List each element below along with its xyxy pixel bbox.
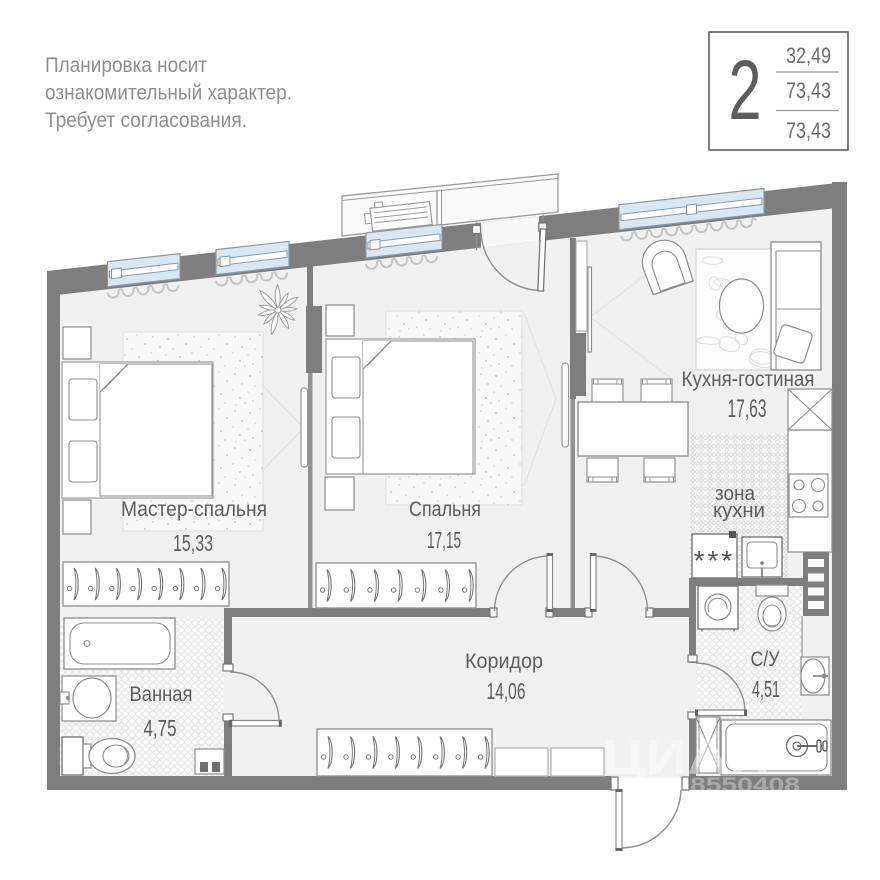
svg-text:2: 2 (729, 43, 762, 137)
svg-text:73,43: 73,43 (786, 118, 831, 143)
svg-text:4,75: 4,75 (144, 715, 177, 741)
svg-text:17,63: 17,63 (728, 395, 767, 423)
svg-text:С/У: С/У (751, 648, 781, 671)
svg-text:Коридор: Коридор (465, 650, 543, 673)
svg-text:***: *** (694, 545, 736, 576)
svg-text:Ванная: Ванная (130, 683, 193, 706)
svg-text:8550408: 8550408 (690, 774, 800, 797)
svg-text:17,15: 17,15 (427, 527, 461, 553)
svg-text:73,43: 73,43 (786, 78, 831, 103)
svg-text:15,33: 15,33 (173, 530, 213, 556)
svg-text:32,49: 32,49 (786, 43, 831, 68)
svg-text:Требует согласования.: Требует согласования. (45, 109, 247, 132)
svg-text:кухни: кухни (713, 500, 765, 522)
svg-text:Мастер-спальня: Мастер-спальня (121, 498, 267, 521)
svg-text:4,51: 4,51 (752, 676, 780, 702)
svg-text:Спальня: Спальня (409, 498, 481, 521)
svg-text:14,06: 14,06 (487, 678, 526, 704)
svg-text:ознакомительный характер.: ознакомительный характер. (45, 82, 292, 105)
svg-text:Кухня-гостиная: Кухня-гостиная (682, 368, 815, 391)
svg-text:Планировка носит: Планировка носит (45, 54, 207, 77)
